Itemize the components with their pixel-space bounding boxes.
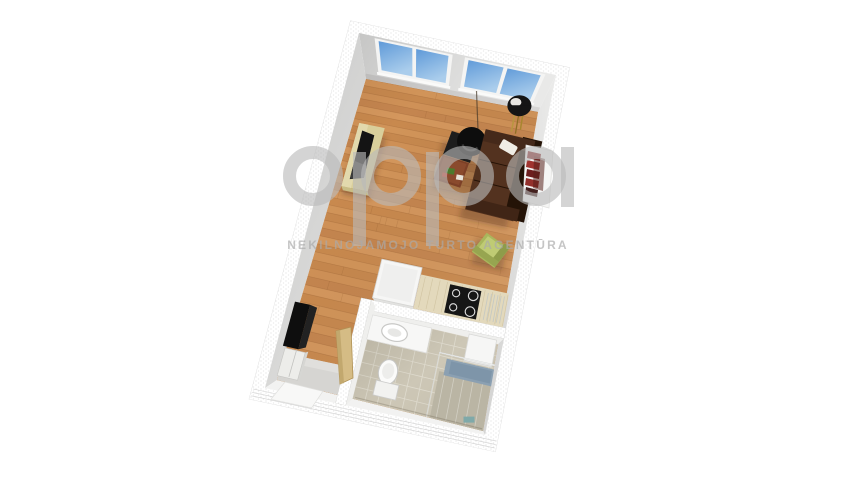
svg-text:NEKILNOJAMOJO TURTO AGENTŪRA: NEKILNOJAMOJO TURTO AGENTŪRA <box>287 238 569 252</box>
